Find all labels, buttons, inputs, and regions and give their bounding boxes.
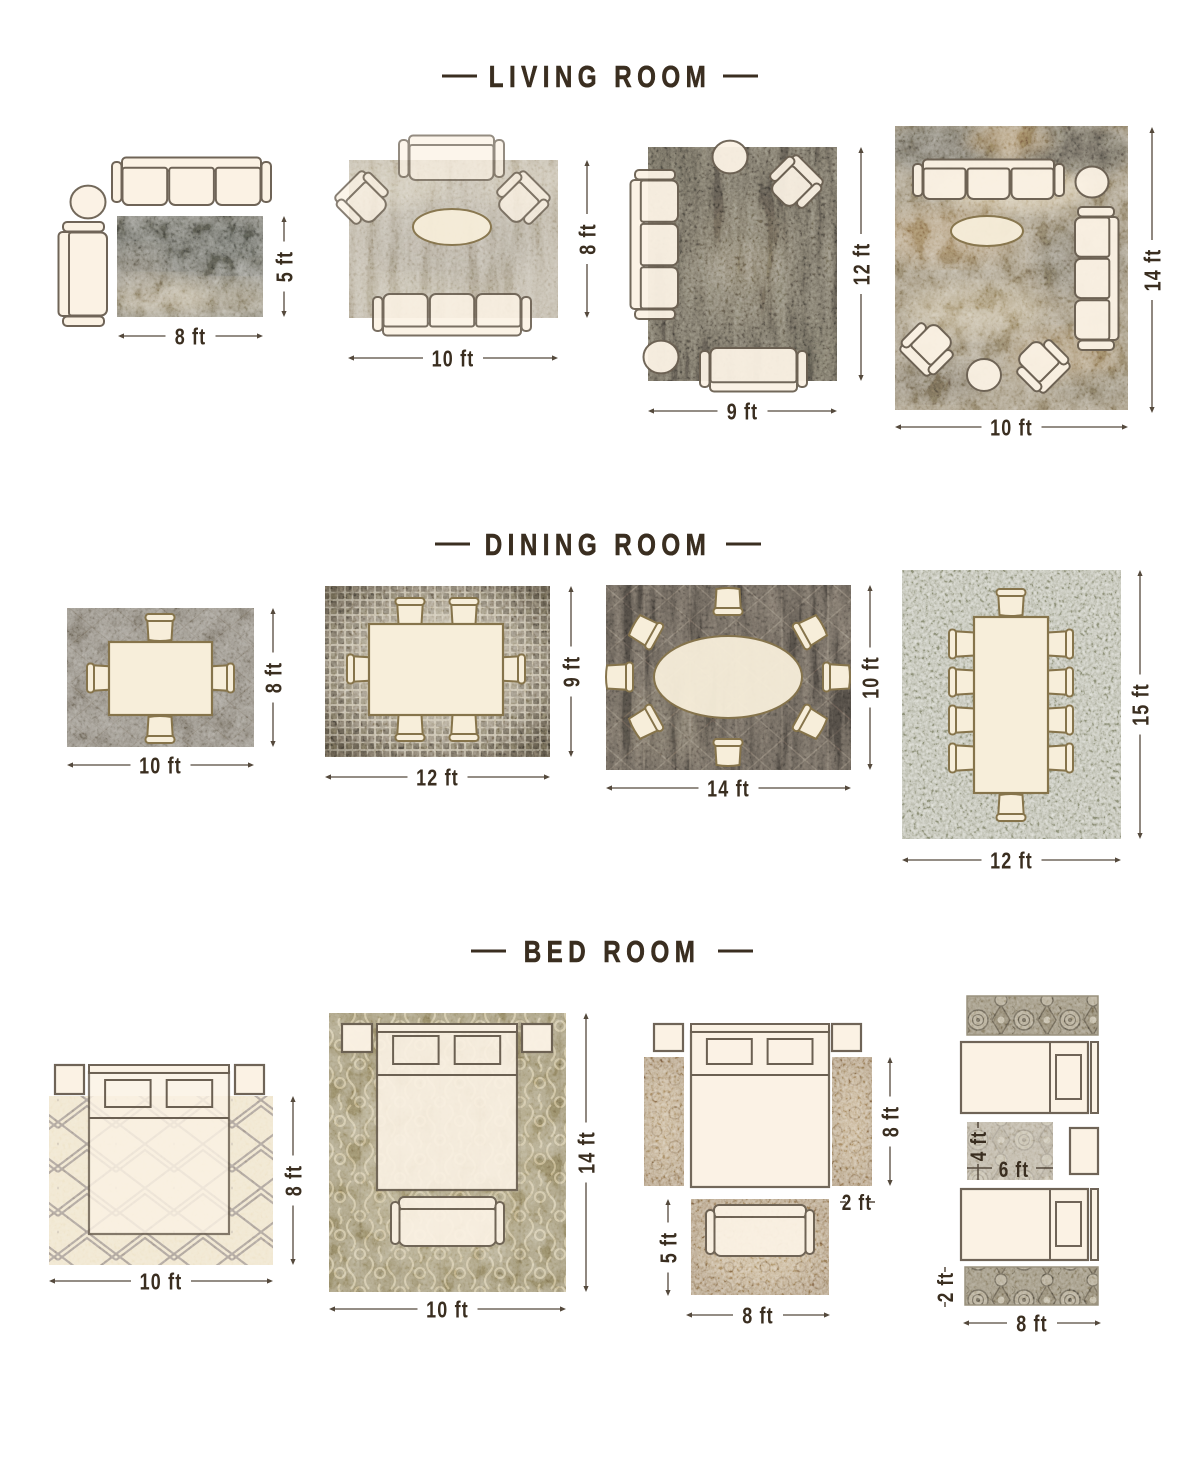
svg-text:10 ft: 10 ft: [140, 1269, 183, 1295]
svg-text:9 ft: 9 ft: [559, 656, 585, 688]
svg-text:10 ft: 10 ft: [432, 346, 475, 372]
svg-text:8 ft: 8 ft: [261, 662, 287, 694]
svg-text:5 ft: 5 ft: [656, 1232, 682, 1264]
svg-text:8 ft: 8 ft: [575, 223, 601, 255]
svg-text:8 ft: 8 ft: [1016, 1311, 1048, 1337]
svg-text:12 ft: 12 ft: [416, 765, 459, 791]
svg-text:15 ft: 15 ft: [1128, 683, 1154, 726]
svg-text:LIVING ROOM: LIVING ROOM: [489, 59, 712, 94]
svg-text:10 ft: 10 ft: [858, 656, 884, 699]
svg-text:8 ft: 8 ft: [175, 324, 207, 350]
svg-text:12 ft: 12 ft: [990, 848, 1033, 874]
svg-text:10 ft: 10 ft: [139, 753, 182, 779]
svg-text:14 ft: 14 ft: [707, 776, 750, 802]
svg-text:2 ft: 2 ft: [842, 1191, 872, 1216]
svg-text:DINING ROOM: DINING ROOM: [485, 527, 712, 562]
svg-text:5 ft: 5 ft: [272, 251, 298, 283]
svg-text:4 ft: 4 ft: [967, 1131, 992, 1161]
svg-text:8 ft: 8 ft: [878, 1106, 904, 1138]
svg-text:10 ft: 10 ft: [426, 1297, 469, 1323]
svg-text:8 ft: 8 ft: [742, 1303, 774, 1329]
svg-text:9 ft: 9 ft: [727, 399, 759, 425]
svg-text:14 ft: 14 ft: [1140, 249, 1166, 292]
svg-text:8 ft: 8 ft: [281, 1165, 307, 1197]
svg-text:12 ft: 12 ft: [849, 243, 875, 286]
svg-text:BED ROOM: BED ROOM: [524, 934, 701, 969]
svg-text:10 ft: 10 ft: [990, 415, 1033, 441]
svg-text:6 ft: 6 ft: [999, 1158, 1029, 1183]
svg-text:14 ft: 14 ft: [574, 1131, 600, 1174]
svg-text:2 ft: 2 ft: [934, 1272, 959, 1302]
